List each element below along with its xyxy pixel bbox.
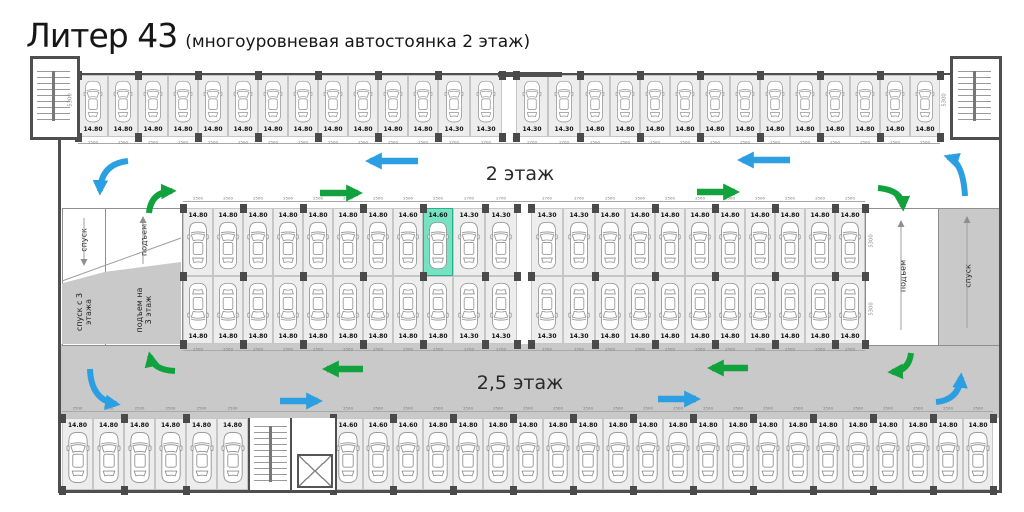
car-icon <box>411 80 435 124</box>
space-area-label: 14.80 <box>85 126 102 133</box>
space-area-label: 14.80 <box>250 333 267 340</box>
structural-column <box>712 204 719 213</box>
space-width-dim: 2500 <box>116 140 130 144</box>
space-width-dim: 2500 <box>663 196 677 200</box>
space-width-dim: 2500 <box>101 406 116 410</box>
car-icon <box>186 221 210 271</box>
parking-space: 14.80 <box>730 75 760 137</box>
parking-space: 14.80 <box>700 75 730 137</box>
ramp-label-down: спуск <box>80 228 89 252</box>
plan-canvas: спуск подъем спуск с 3 этажа подъем на 3… <box>0 0 1024 512</box>
car-icon <box>306 221 330 271</box>
space-area-label: 14.80 <box>400 333 417 340</box>
parking-space: 14.80 <box>880 75 910 137</box>
car-icon <box>566 281 592 331</box>
car-icon <box>718 221 742 271</box>
space-area-label: 14.80 <box>610 422 627 429</box>
car-icon <box>636 431 660 485</box>
structural-column <box>990 414 997 423</box>
structural-column <box>360 204 367 213</box>
ramp-label-up-to3: подъем на 3 этаж <box>135 284 153 336</box>
space-width-dim: 2500 <box>431 406 445 410</box>
space-area-label: 14.80 <box>887 126 904 133</box>
space-area-label: 14.80 <box>797 126 814 133</box>
space-area-label: 14.80 <box>190 212 207 219</box>
car-icon <box>666 431 690 485</box>
parking-space: 14.80 <box>745 208 775 276</box>
vertical-dim: 5300 <box>941 93 947 106</box>
car-icon <box>381 80 405 124</box>
car-icon <box>127 431 152 485</box>
car-icon <box>763 80 787 124</box>
parking-space: 14.80 <box>348 75 378 137</box>
space-width-dim: 2500 <box>783 196 797 200</box>
car-icon <box>426 221 450 271</box>
parking-space: 14.80 <box>640 75 670 137</box>
structural-column <box>435 71 442 80</box>
car-icon <box>613 80 637 124</box>
structural-column <box>690 414 697 423</box>
car-icon <box>291 80 315 124</box>
parking-space: 14.80 <box>543 418 573 490</box>
parking-space: 14.80 <box>303 276 333 344</box>
car-icon <box>576 431 600 485</box>
space-area-label: 14.80 <box>602 212 619 219</box>
space-area-label: 14.60 <box>400 422 417 429</box>
structural-column <box>510 414 517 423</box>
parking-space: 14.80 <box>595 276 625 344</box>
parking-space: 14.80 <box>243 276 273 344</box>
parking-space: 14.80 <box>903 418 933 490</box>
stairs-icon <box>958 71 991 121</box>
space-width-dim: 2500 <box>521 406 535 410</box>
car-icon <box>441 80 467 124</box>
space-area-label: 14.80 <box>265 126 282 133</box>
space-width-dim: 2500 <box>146 140 160 144</box>
structural-column <box>697 133 704 142</box>
space-area-label: 14.80 <box>970 422 987 429</box>
space-area-label: 14.30 <box>460 212 478 219</box>
space-width-dim: 2700 <box>461 347 476 351</box>
space-width-dim: 2500 <box>971 406 985 410</box>
space-width-dim: 2500 <box>843 347 857 351</box>
parking-space: 14.80 <box>363 208 393 276</box>
space-width-dim: 2500 <box>431 347 445 351</box>
space-width-dim: 2700 <box>493 196 508 200</box>
space-width-dim: 2500 <box>191 196 205 200</box>
space-area-label: 14.80 <box>370 333 387 340</box>
space-width-dim: 2500 <box>416 140 430 144</box>
structural-column <box>937 71 944 80</box>
car-icon <box>261 80 285 124</box>
space-area-label: 14.80 <box>662 333 679 340</box>
structural-column <box>240 204 247 213</box>
parking-space: 14.80 <box>775 208 805 276</box>
structural-column <box>420 340 427 349</box>
parking-space: 14.80 <box>318 75 348 137</box>
car-icon <box>688 221 712 271</box>
parking-space: 14.80 <box>685 208 715 276</box>
structural-column <box>592 204 599 213</box>
structural-column <box>240 340 247 349</box>
space-width-dim: 2500 <box>206 140 220 144</box>
space-area-label: 14.80 <box>520 422 537 429</box>
space-area-label: 14.80 <box>782 212 799 219</box>
parking-space: 14.60 <box>393 208 423 276</box>
car-icon <box>396 281 420 331</box>
stairs-icon <box>37 71 70 121</box>
structural-column <box>930 414 937 423</box>
parking-space: 14.80 <box>513 418 543 490</box>
space-area-label: 14.80 <box>224 422 241 429</box>
structural-column <box>513 71 520 80</box>
space-width-dim: 2500 <box>401 406 415 410</box>
structural-column <box>862 204 869 213</box>
space-width-dim: 2500 <box>611 406 625 410</box>
space-area-label: 14.80 <box>340 212 357 219</box>
space-area-label: 14.80 <box>355 126 372 133</box>
space-width-dim: 2500 <box>281 347 295 351</box>
space-width-dim: 2500 <box>311 347 325 351</box>
space-width-dim: 2700 <box>493 347 508 351</box>
parking-space: 14.80 <box>655 208 685 276</box>
car-icon <box>96 431 121 485</box>
car-icon <box>906 431 930 485</box>
space-area-label: 14.80 <box>632 333 649 340</box>
car-icon <box>456 281 482 331</box>
car-icon <box>321 80 345 124</box>
car-icon <box>306 281 330 331</box>
car-icon <box>566 221 592 271</box>
structural-column <box>930 486 937 495</box>
car-icon <box>756 431 780 485</box>
structural-column <box>390 486 397 495</box>
parking-space: 14.80 <box>186 418 217 490</box>
car-icon <box>628 281 652 331</box>
car-icon <box>883 80 907 124</box>
parking-space: 14.80 <box>333 276 363 344</box>
parking-space: 14.30 <box>485 208 517 276</box>
space-area-label: 14.30 <box>538 333 556 340</box>
car-icon <box>488 281 514 331</box>
parking-space: 14.60 <box>333 418 363 490</box>
car-icon <box>786 431 810 485</box>
parking-space: 14.80 <box>155 418 186 490</box>
parking-space: 14.80 <box>108 75 138 137</box>
structural-column <box>577 71 584 80</box>
space-area-label: 14.80 <box>842 212 859 219</box>
space-area-label: 14.80 <box>640 422 657 429</box>
car-icon <box>486 431 510 485</box>
structural-column <box>577 133 584 142</box>
space-width-dim: 2500 <box>693 347 707 351</box>
parking-space: 14.80 <box>378 75 408 137</box>
space-area-label: 14.60 <box>400 212 417 219</box>
structural-column <box>420 272 427 281</box>
car-icon <box>216 221 240 271</box>
parking-space: 14.80 <box>820 75 850 137</box>
structural-column <box>183 414 190 423</box>
structural-column <box>121 414 128 423</box>
space-area-label: 14.80 <box>677 126 694 133</box>
space-width-dim: 2700 <box>446 140 461 144</box>
parking-space: 14.60 <box>393 418 423 490</box>
structural-column <box>832 272 839 281</box>
car-icon <box>838 221 862 271</box>
structural-column <box>482 204 489 213</box>
ramp-label-right-down: спуск <box>964 264 973 288</box>
stairs-icon <box>254 426 287 482</box>
parking-space: 14.80 <box>805 208 835 276</box>
car-icon <box>808 221 832 271</box>
space-area-label: 14.80 <box>220 212 237 219</box>
structural-column <box>870 486 877 495</box>
elevator-shaft-icon <box>297 454 333 488</box>
parking-space: 14.30 <box>470 75 502 137</box>
structural-column <box>450 486 457 495</box>
space-width-dim: 2500 <box>371 406 385 410</box>
parking-space: 14.80 <box>258 75 288 137</box>
structural-column <box>513 133 520 142</box>
car-icon <box>643 80 667 124</box>
structural-column <box>255 133 262 142</box>
parking-space: 14.80 <box>595 208 625 276</box>
car-icon <box>703 80 727 124</box>
car-icon <box>658 281 682 331</box>
parking-space: 14.80 <box>243 208 273 276</box>
vertical-dim: 5300 <box>868 302 874 315</box>
space-area-label: 14.30 <box>492 333 510 340</box>
structural-column <box>510 486 517 495</box>
space-width-dim: 2500 <box>371 347 385 351</box>
car-icon <box>673 80 697 124</box>
space-area-label: 14.80 <box>340 333 357 340</box>
space-width-dim: 2500 <box>723 347 737 351</box>
space-area-label: 14.80 <box>752 333 769 340</box>
space-width-dim: 2500 <box>326 140 340 144</box>
structural-column <box>360 272 367 281</box>
space-area-label: 14.30 <box>460 333 478 340</box>
space-area-label: 14.80 <box>460 422 477 429</box>
space-width-dim: 2500 <box>401 196 415 200</box>
parking-space: 14.80 <box>610 75 640 137</box>
parking-space: 14.80 <box>790 75 820 137</box>
floor25-label: 2,5 этаж <box>445 372 595 394</box>
space-area-label: 14.80 <box>370 212 387 219</box>
car-icon <box>853 80 877 124</box>
car-icon <box>336 281 360 331</box>
space-width-dim: 2500 <box>236 140 250 144</box>
structural-column <box>570 414 577 423</box>
car-icon <box>838 281 862 331</box>
space-width-dim: 2500 <box>431 196 445 200</box>
structural-column <box>514 340 521 349</box>
structural-column <box>528 340 535 349</box>
structural-column <box>652 272 659 281</box>
space-width-dim: 2500 <box>194 406 209 410</box>
car-icon <box>473 80 499 124</box>
parking-space: 14.80 <box>273 276 303 344</box>
space-width-dim: 2700 <box>461 196 476 200</box>
space-width-dim: 2500 <box>371 196 385 200</box>
car-icon <box>748 281 772 331</box>
car-icon <box>748 221 772 271</box>
car-icon <box>488 221 514 271</box>
parking-space: 14.80 <box>775 276 805 344</box>
parking-space: 14.80 <box>753 418 783 490</box>
car-icon <box>216 281 240 331</box>
space-width-dim: 2500 <box>221 347 235 351</box>
car-icon <box>876 431 900 485</box>
parking-space: 14.80 <box>217 418 248 490</box>
space-width-dim: 2500 <box>281 196 295 200</box>
parking-space: 14.80 <box>423 418 453 490</box>
structural-column <box>750 414 757 423</box>
structural-column <box>482 272 489 281</box>
space-area-label: 14.80 <box>880 422 897 429</box>
structural-column <box>514 204 521 213</box>
car-icon <box>141 80 165 124</box>
dimension-line <box>62 411 993 412</box>
parking-space: 14.30 <box>453 276 485 344</box>
space-width-dim: 2500 <box>791 406 805 410</box>
parking-space: 14.80 <box>663 418 693 490</box>
space-area-label: 14.80 <box>602 333 619 340</box>
space-area-label: 14.80 <box>100 422 117 429</box>
space-area-label: 14.80 <box>842 333 859 340</box>
parking-space: 14.30 <box>531 208 563 276</box>
structural-column <box>570 486 577 495</box>
space-area-label: 14.80 <box>670 422 687 429</box>
parking-space: 14.80 <box>603 418 633 490</box>
core-wall <box>290 418 292 490</box>
car-icon <box>534 281 560 331</box>
car-icon <box>189 431 214 485</box>
parking-space: 14.80 <box>273 208 303 276</box>
parking-space: 14.80 <box>670 75 700 137</box>
parking-space: 14.80 <box>183 276 213 344</box>
space-width-dim: 2500 <box>888 140 902 144</box>
parking-space: 14.80 <box>693 418 723 490</box>
parking-space: 14.80 <box>813 418 843 490</box>
car-icon <box>658 221 682 271</box>
structural-column <box>990 486 997 495</box>
space-area-label: 14.30 <box>445 126 463 133</box>
space-area-label: 14.80 <box>812 333 829 340</box>
space-area-label: 14.80 <box>175 126 192 133</box>
space-area-label: 14.80 <box>692 333 709 340</box>
space-area-label: 14.80 <box>205 126 222 133</box>
space-width-dim: 2500 <box>821 406 835 410</box>
structural-column <box>750 486 757 495</box>
parking-space: 14.80 <box>408 75 438 137</box>
parking-space: 14.30 <box>438 75 470 137</box>
ramp-label-up: подъем <box>140 224 149 256</box>
structural-column <box>832 204 839 213</box>
space-width-dim: 2500 <box>693 196 707 200</box>
space-area-label: 14.80 <box>295 126 312 133</box>
car-icon <box>351 80 375 124</box>
plan-header: Литер 43(многоуровневая автостоянка 2 эт… <box>26 16 530 55</box>
car-icon <box>456 431 480 485</box>
structural-column <box>180 340 187 349</box>
car-icon <box>81 80 105 124</box>
space-area-label: 14.60 <box>430 212 447 219</box>
parking-space: 14.80 <box>580 75 610 137</box>
space-area-label: 14.80 <box>782 333 799 340</box>
car-icon <box>534 221 560 271</box>
structural-column <box>810 486 817 495</box>
structural-column <box>697 71 704 80</box>
space-area-label: 14.80 <box>220 333 237 340</box>
space-area-label: 14.80 <box>115 126 132 133</box>
parking-space: 14.80 <box>78 75 108 137</box>
parking-space: 14.80 <box>933 418 963 490</box>
space-width-dim: 2500 <box>132 406 147 410</box>
car-icon <box>65 431 90 485</box>
car-icon <box>778 281 802 331</box>
space-width-dim: 2500 <box>918 140 932 144</box>
space-width-dim: 2500 <box>633 347 647 351</box>
space-width-dim: 2500 <box>588 140 602 144</box>
parking-space: 14.60 <box>363 418 393 490</box>
car-icon <box>598 221 622 271</box>
structural-column <box>528 272 535 281</box>
space-width-dim: 2500 <box>813 347 827 351</box>
space-width-dim: 2500 <box>851 406 865 410</box>
space-area-label: 14.80 <box>385 126 402 133</box>
structural-column <box>375 133 382 142</box>
dimension-line <box>183 201 865 202</box>
car-icon <box>426 281 450 331</box>
structural-column <box>757 133 764 142</box>
car-icon <box>846 431 870 485</box>
car-icon <box>733 80 757 124</box>
structural-column <box>499 71 506 80</box>
car-icon <box>246 221 270 271</box>
parking-space: 14.80 <box>213 208 243 276</box>
structural-column <box>817 133 824 142</box>
structural-column <box>652 204 659 213</box>
space-width-dim: 2500 <box>708 140 722 144</box>
space-width-dim: 2700 <box>478 140 493 144</box>
parking-space: 14.80 <box>333 208 363 276</box>
car-icon <box>220 431 245 485</box>
structural-column <box>862 340 869 349</box>
structural-column <box>877 133 884 142</box>
parking-space-selected[interactable]: 14.60 <box>423 208 453 276</box>
space-area-label: 14.80 <box>737 126 754 133</box>
structural-column <box>712 272 719 281</box>
space-area-label: 14.80 <box>827 126 844 133</box>
parking-floor-plan: Литер 43(многоуровневая автостоянка 2 эт… <box>0 0 1024 512</box>
space-width-dim: 2500 <box>858 140 872 144</box>
structural-column <box>183 486 190 495</box>
car-icon <box>366 431 390 485</box>
space-width-dim: 2500 <box>911 406 925 410</box>
car-icon <box>808 281 832 331</box>
space-width-dim: 2500 <box>843 196 857 200</box>
space-width-dim: 2500 <box>671 406 685 410</box>
car-icon <box>366 281 390 331</box>
space-width-dim: 2500 <box>356 140 370 144</box>
space-width-dim: 2500 <box>618 140 632 144</box>
parking-space: 14.80 <box>363 276 393 344</box>
space-area-label: 14.30 <box>570 212 588 219</box>
space-area-label: 14.80 <box>662 212 679 219</box>
car-icon <box>936 431 960 485</box>
space-width-dim: 2700 <box>524 140 539 144</box>
